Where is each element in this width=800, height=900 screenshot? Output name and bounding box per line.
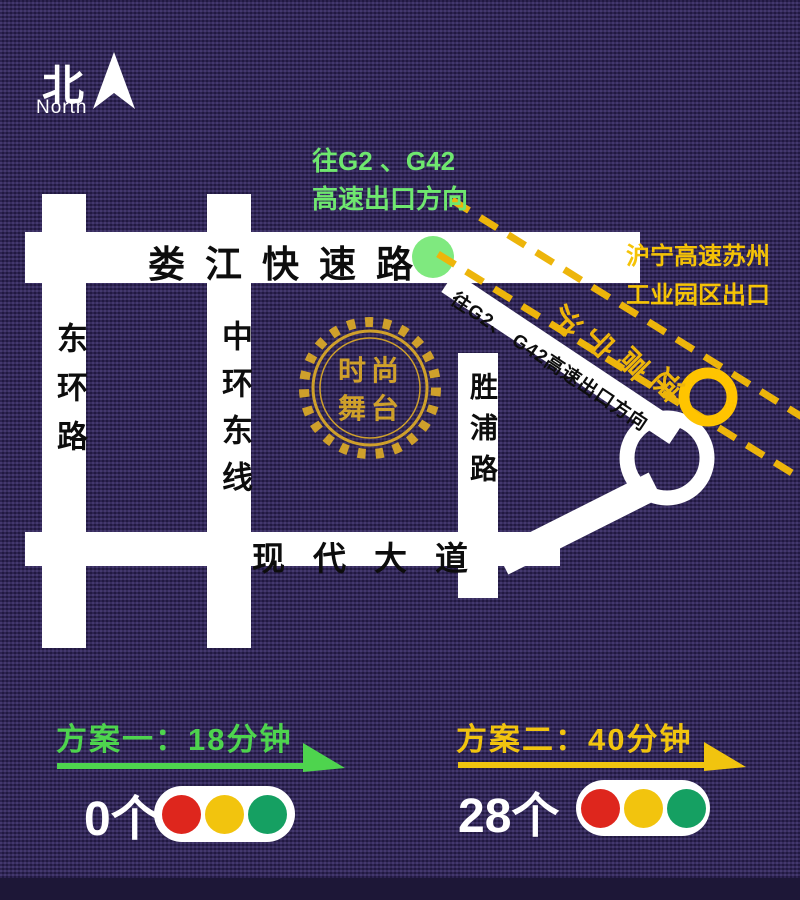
plan2-light-count: 28个: [458, 776, 559, 846]
green-light-icon: [248, 795, 287, 834]
north-arrow-icon: [93, 52, 135, 109]
plan2-title: 方案二：40分钟: [456, 714, 692, 759]
label-shengpu-road: 胜浦路: [462, 372, 502, 495]
route-map-infographic: 北 North 往G2 、G42 高速出口方向 沪宁高速苏州 工业园区出口 娄江…: [0, 0, 800, 900]
green-light-icon: [667, 789, 706, 828]
plan1-title: 方案一：18分钟: [56, 714, 292, 759]
road-loop-connector: [502, 485, 655, 562]
huning-exit-line1: 沪宁高速苏州: [626, 237, 770, 276]
label-loujiang-expressway: 娄江快速路: [148, 234, 433, 288]
map-canvas: [0, 0, 800, 900]
huning-exit-line2: 工业园区出口: [626, 276, 770, 315]
red-light-icon: [581, 789, 620, 828]
footer-strip: [0, 878, 800, 900]
g2-exit-hint: 往G2 、G42 高速出口方向: [312, 142, 468, 218]
logo-text-line1: 时尚: [338, 349, 404, 389]
red-light-icon: [162, 795, 201, 834]
label-middle-ring-east: 中环东线: [212, 320, 257, 508]
huning-exit-label: 沪宁高速苏州 工业园区出口: [626, 237, 770, 315]
yellow-light-icon: [624, 789, 663, 828]
g2-exit-hint-line1: 往G2 、G42: [312, 142, 468, 180]
exit-ring-icon: [684, 373, 732, 421]
yellow-light-icon: [205, 795, 244, 834]
plan1-traffic-light-icon: [154, 786, 295, 842]
plan2-traffic-light-icon: [576, 780, 710, 836]
logo-text-line2: 舞台: [338, 387, 404, 427]
compass-label-en: North: [36, 97, 87, 119]
plan1-light-count: 0个: [84, 779, 159, 849]
label-east-ring-road: 东环路: [47, 322, 92, 469]
g2-exit-hint-line2: 高速出口方向: [312, 180, 468, 218]
label-modern-avenue: 现代大道: [252, 532, 496, 580]
